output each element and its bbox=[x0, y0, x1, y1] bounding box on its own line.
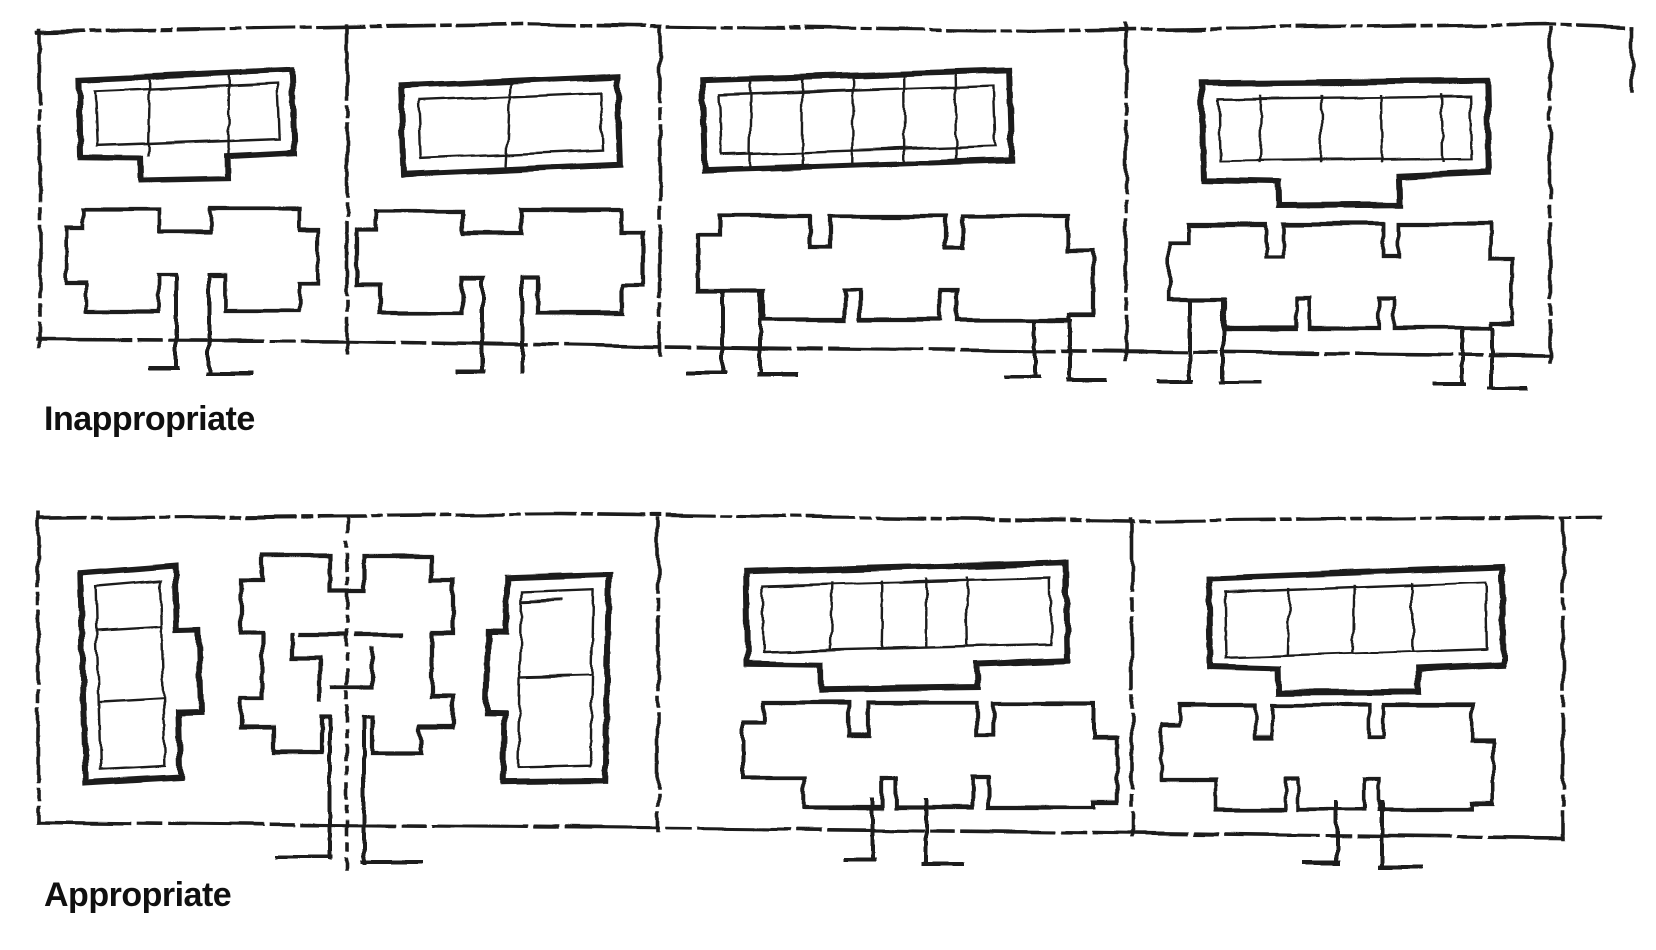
rear-property-line bbox=[38, 514, 1600, 521]
existing-house-lot2 bbox=[357, 210, 643, 313]
existing-house-lot1 bbox=[66, 208, 318, 311]
addition-footprint-lot1 bbox=[79, 70, 295, 181]
front-walkways-top bbox=[150, 275, 1526, 387]
guideline-figure: Inappropriate Appropriate bbox=[0, 0, 1656, 950]
addition-footprint-middle bbox=[746, 563, 1068, 690]
addition-footprint-lot3 bbox=[702, 70, 1012, 170]
appropriate-label: Appropriate bbox=[44, 876, 231, 915]
inappropriate-panel-drawing bbox=[38, 24, 1632, 387]
addition-footprint-right bbox=[485, 573, 609, 784]
existing-house-lot3 bbox=[698, 216, 1093, 320]
addition-footprint-lot2 bbox=[401, 77, 620, 175]
addition-footprint-lot4 bbox=[1202, 77, 1490, 209]
street-front-line bbox=[38, 822, 1562, 838]
addition-footprint-far-right bbox=[1209, 567, 1504, 695]
site-plan-sketch bbox=[0, 0, 1656, 950]
rear-property-line bbox=[38, 24, 1632, 32]
street-front-line bbox=[38, 340, 1550, 356]
existing-house-lot4 bbox=[1169, 224, 1513, 328]
addition-footprint-left bbox=[80, 565, 203, 782]
existing-house-middle bbox=[743, 703, 1118, 807]
appropriate-panel-drawing bbox=[38, 513, 1600, 868]
existing-house-far-right bbox=[1161, 705, 1493, 809]
existing-house-outlines-top bbox=[66, 208, 1512, 328]
inappropriate-label: Inappropriate bbox=[44, 400, 255, 439]
